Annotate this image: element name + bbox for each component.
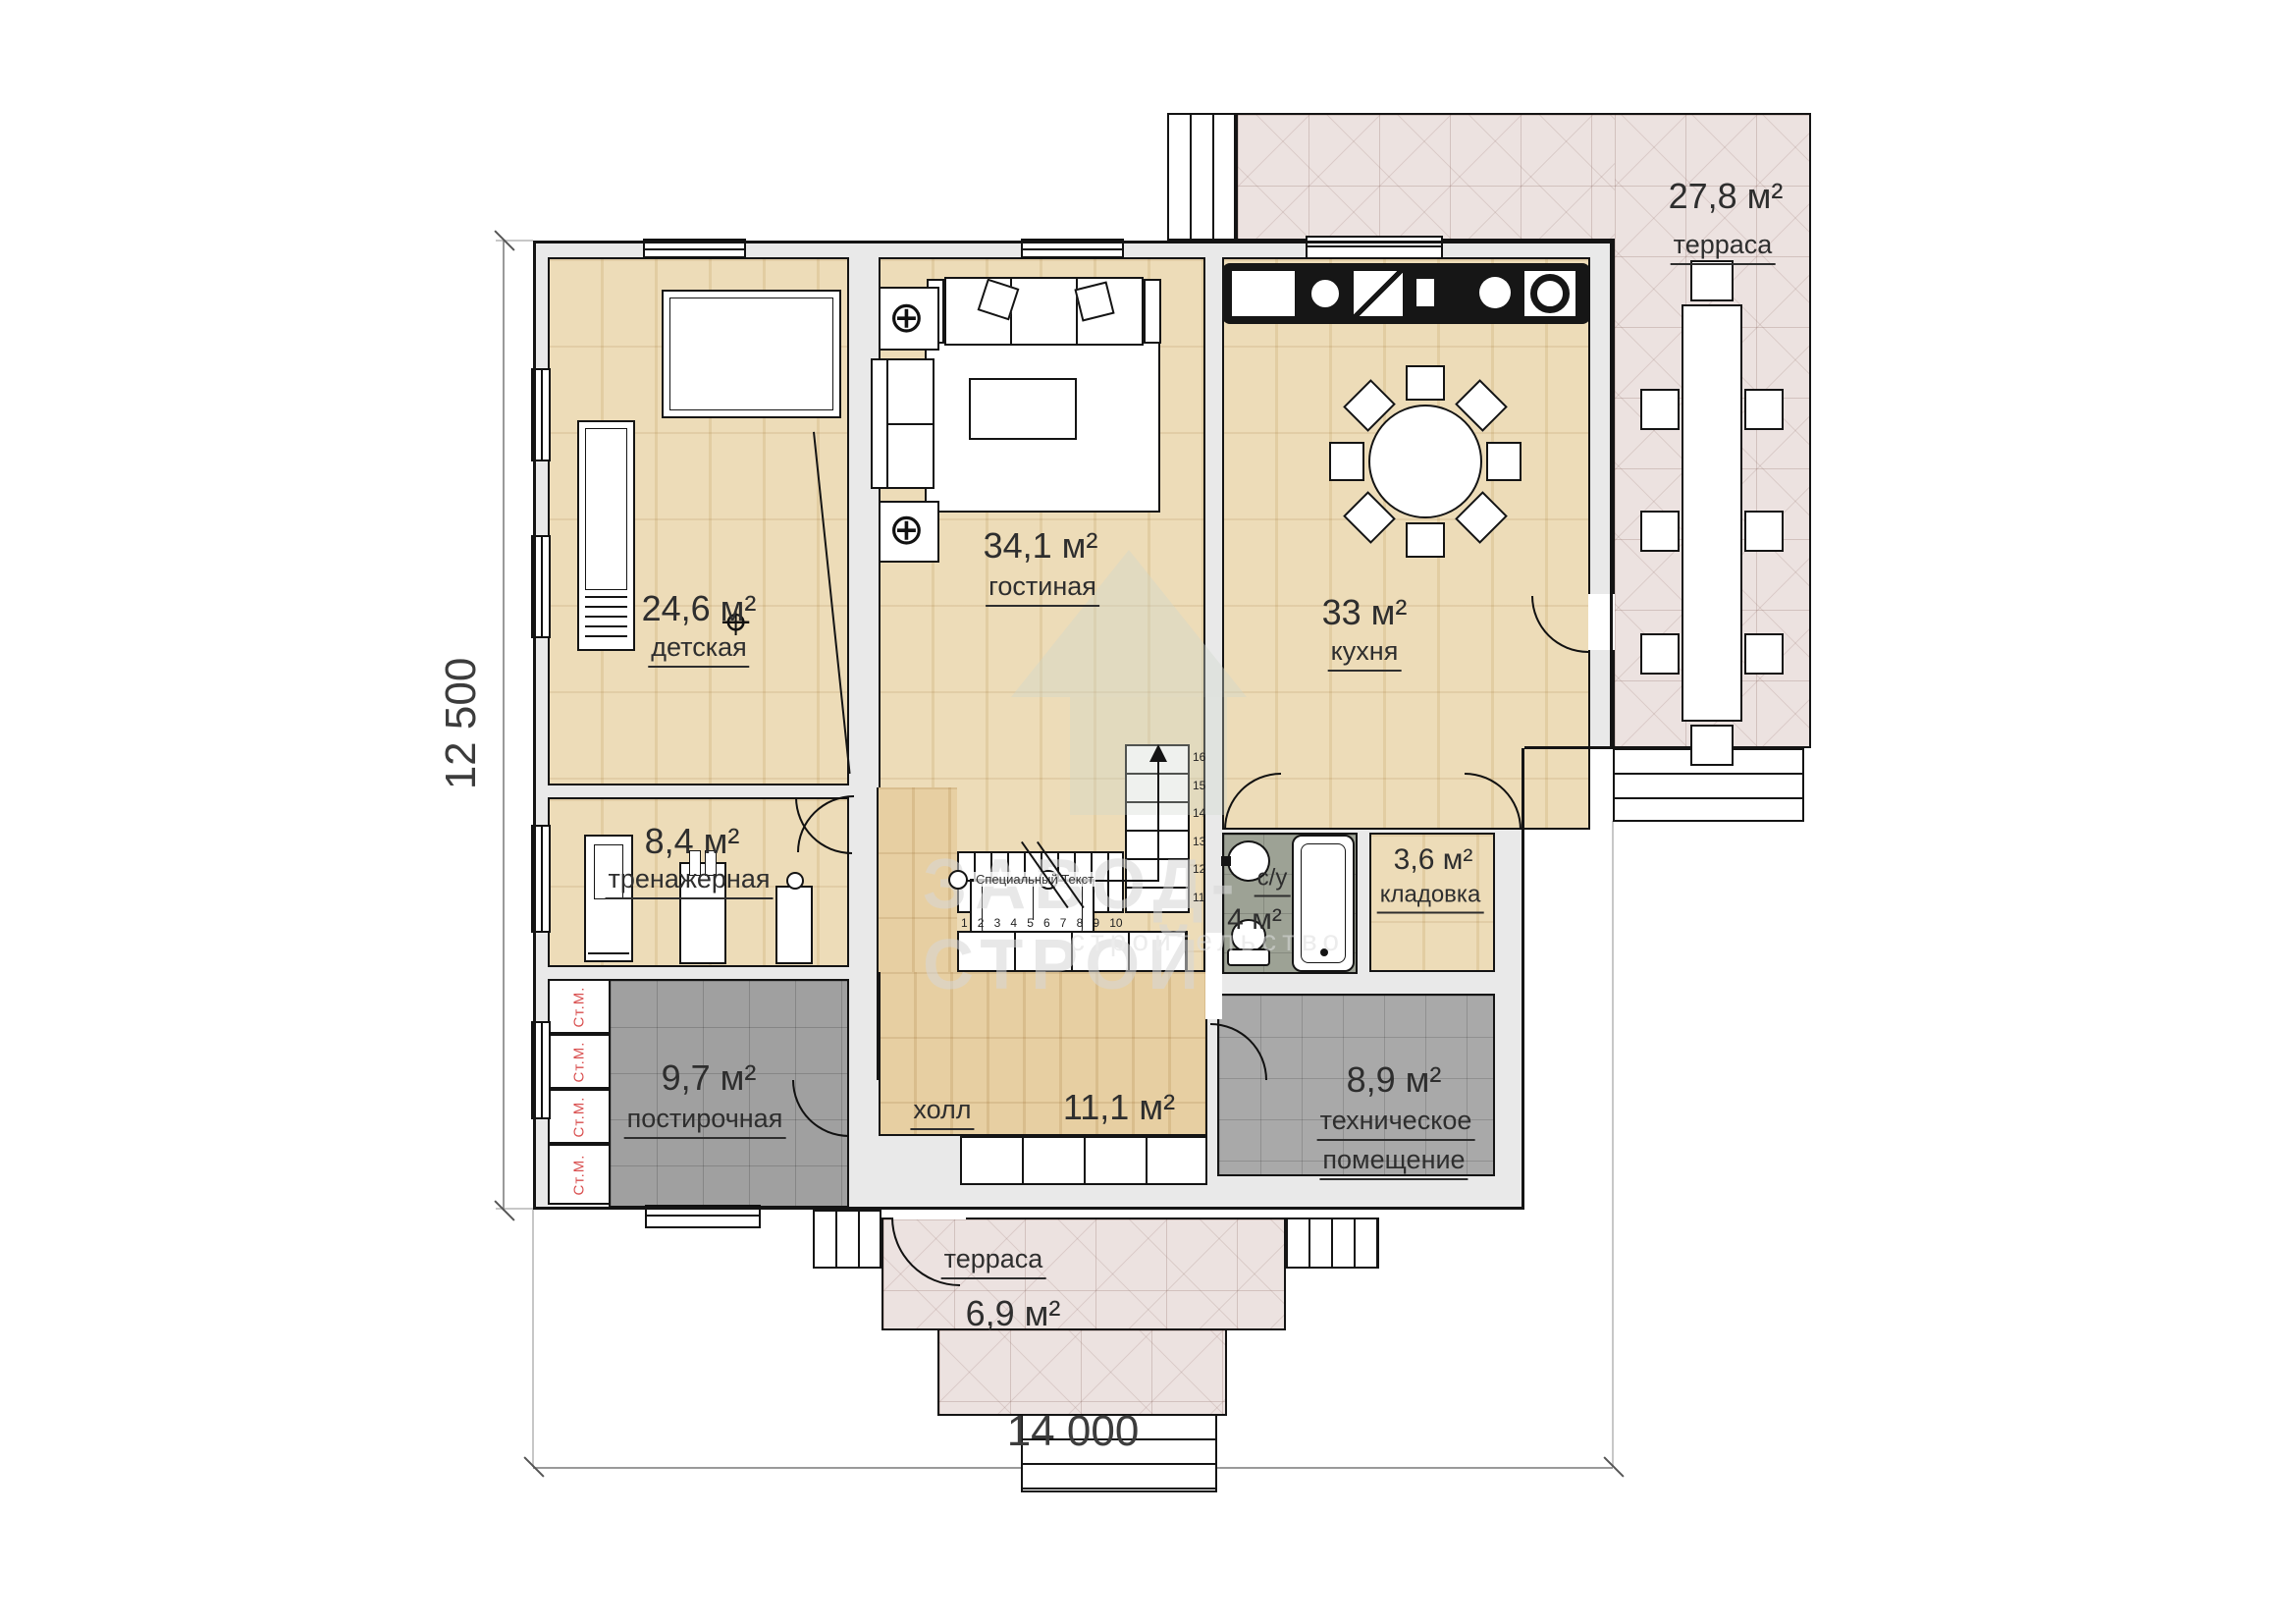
washing-machine: Ст.М. bbox=[548, 979, 611, 1034]
stair-number: 2 bbox=[978, 916, 985, 930]
tehpom-name-2: помещение bbox=[1319, 1145, 1468, 1180]
stair-number: 5 bbox=[1027, 916, 1034, 930]
chair bbox=[1486, 442, 1522, 481]
chair bbox=[1329, 442, 1364, 481]
outer-wall-step bbox=[1524, 746, 1613, 749]
kitchen-table bbox=[1368, 405, 1482, 518]
stair-number: 7 bbox=[1060, 916, 1067, 930]
floor-plan: 12 500 14 000 27,8 м² терраса 24,6 м² де… bbox=[0, 0, 2296, 1624]
kladovka-name: кладовка bbox=[1377, 882, 1484, 914]
wall-opening bbox=[1205, 933, 1222, 1019]
gostinaya-name: гостиная bbox=[986, 571, 1099, 607]
chair bbox=[1640, 633, 1680, 675]
chair bbox=[1744, 633, 1784, 675]
outer-wall-left bbox=[533, 241, 536, 1210]
stair-numbers-upper: 161514131211 bbox=[1193, 744, 1218, 913]
terrace-side-steps-left bbox=[813, 1210, 881, 1269]
outer-wall-bottom bbox=[533, 1207, 1524, 1210]
stair-numbers-lower: 12345678910 bbox=[957, 916, 1124, 932]
chair bbox=[1744, 511, 1784, 552]
stair-number: 15 bbox=[1193, 779, 1205, 792]
chair bbox=[1640, 389, 1680, 430]
outer-wall-top bbox=[533, 241, 1613, 244]
stair-number: 6 bbox=[1043, 916, 1050, 930]
washing-machine: Ст.М. bbox=[548, 1089, 611, 1144]
armchair bbox=[871, 358, 934, 489]
terrace-bottom-mid bbox=[937, 1328, 1227, 1416]
left-dimension-line bbox=[503, 241, 505, 1211]
detskaya-area: 24,6 м² bbox=[642, 588, 757, 629]
kuhnya-area: 33 м² bbox=[1322, 592, 1408, 633]
treadmill bbox=[577, 420, 635, 651]
detskaya-name: детская bbox=[648, 632, 749, 668]
kuhnya-name: кухня bbox=[1328, 636, 1402, 672]
terrace-top-name: терраса bbox=[1671, 230, 1776, 265]
holl-name: холл bbox=[910, 1095, 974, 1130]
bathtub bbox=[1292, 835, 1355, 972]
stair-number: 10 bbox=[1109, 916, 1122, 930]
terrace-top-area: 27,8 м² bbox=[1669, 176, 1784, 217]
kitchen-counter bbox=[1222, 263, 1590, 324]
postirochnaya-area: 9,7 м² bbox=[662, 1057, 757, 1099]
stair-number: 3 bbox=[994, 916, 1001, 930]
chair bbox=[1690, 260, 1734, 301]
chair bbox=[1406, 365, 1445, 401]
stair-number: 14 bbox=[1193, 806, 1205, 820]
hob-control-icon bbox=[1416, 279, 1434, 306]
terrace-bottom-name: терраса bbox=[941, 1244, 1046, 1279]
hall-corridor bbox=[879, 787, 957, 976]
trenazhernaya-area: 8,4 м² bbox=[645, 821, 740, 862]
corridor-wall bbox=[877, 787, 879, 1080]
outer-wall-right-lower bbox=[1522, 748, 1524, 1210]
toilet-tank bbox=[1227, 948, 1270, 966]
bed bbox=[662, 290, 841, 418]
stair-number: 1 bbox=[961, 916, 968, 930]
left-dimension-label: 12 500 bbox=[437, 658, 486, 790]
extension-line bbox=[1612, 821, 1614, 1467]
window bbox=[1306, 236, 1443, 259]
closet-row bbox=[960, 1136, 1207, 1185]
kladovka-area: 3,6 м² bbox=[1394, 843, 1473, 877]
terrace-bottom-area: 6,9 м² bbox=[966, 1293, 1061, 1334]
burner-icon bbox=[1479, 277, 1511, 308]
speaker-icon: ⊕ bbox=[888, 509, 925, 552]
chair bbox=[1406, 522, 1445, 558]
stair-number: 16 bbox=[1193, 750, 1205, 764]
tehpom-area: 8,9 м² bbox=[1347, 1059, 1442, 1101]
sink-icon bbox=[1308, 277, 1342, 310]
stair-direction-arrow bbox=[1149, 744, 1167, 762]
dimension-tick bbox=[494, 1200, 514, 1220]
trenazhernaya-name: тренажерная bbox=[606, 864, 774, 899]
closet-row bbox=[957, 931, 1188, 972]
terrace-steps-left bbox=[1167, 113, 1236, 241]
sink-tap bbox=[1221, 856, 1231, 866]
stair-number: 8 bbox=[1077, 916, 1084, 930]
chair bbox=[1640, 511, 1680, 552]
stair-note: Специальный Текст bbox=[974, 872, 1095, 887]
stair-number: 9 bbox=[1093, 916, 1099, 930]
fridge-icon bbox=[1232, 271, 1295, 316]
cutting-board-icon bbox=[1354, 271, 1403, 316]
stair-number: 12 bbox=[1193, 862, 1205, 876]
holl-area: 11,1 м² bbox=[1063, 1087, 1175, 1128]
dining-table bbox=[1682, 304, 1742, 722]
chair bbox=[1690, 725, 1734, 766]
hob-icon bbox=[1524, 271, 1575, 316]
extension-line bbox=[532, 1210, 534, 1467]
walkline-node bbox=[948, 870, 968, 890]
washing-machine: Ст.М. bbox=[548, 1144, 611, 1205]
sofa-armrest bbox=[1144, 279, 1161, 344]
bottom-dimension-label: 14 000 bbox=[1007, 1407, 1140, 1456]
gostinaya-area: 34,1 м² bbox=[984, 525, 1098, 567]
stair-walkline-vertical bbox=[1157, 758, 1159, 882]
sanuzel-area: 4 м² bbox=[1227, 903, 1282, 937]
stair-number: 13 bbox=[1193, 835, 1205, 848]
extension-line bbox=[496, 240, 533, 242]
room-terrace-top-strip bbox=[1236, 113, 1615, 241]
tehpom-name-1: техническое bbox=[1317, 1106, 1475, 1141]
sanuzel-name: с/у bbox=[1255, 865, 1291, 897]
terrace-side-steps-right bbox=[1286, 1218, 1379, 1269]
postirochnaya-name: постирочная bbox=[624, 1104, 786, 1139]
stair-number: 4 bbox=[1010, 916, 1017, 930]
speaker-icon: ⊕ bbox=[888, 297, 925, 340]
stair-number: 11 bbox=[1193, 891, 1204, 904]
outer-wall-right-upper bbox=[1610, 241, 1613, 748]
chair bbox=[1744, 389, 1784, 430]
gym-rack bbox=[775, 886, 813, 964]
washing-machine: Ст.М. bbox=[548, 1034, 611, 1089]
coffee-table bbox=[969, 378, 1077, 440]
